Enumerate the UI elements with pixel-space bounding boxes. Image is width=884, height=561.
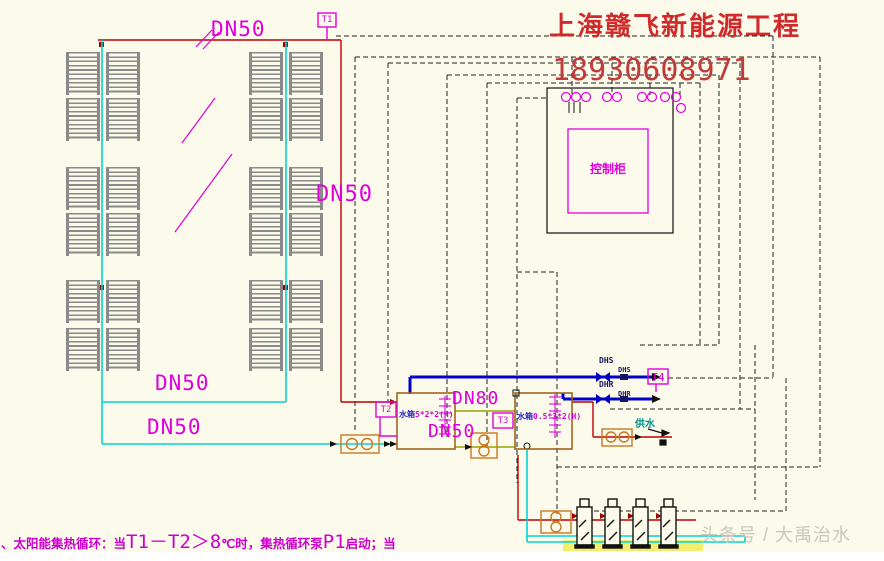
note-pre: 、太阳能集热循环：当 xyxy=(1,537,126,551)
pump-heater-loop xyxy=(541,511,571,533)
pipe-label-dn50-right: DN50 xyxy=(316,184,373,206)
solar-collector-panel xyxy=(289,52,323,95)
note-end: 启动；当 xyxy=(346,537,396,551)
terminal-stubs xyxy=(569,102,580,113)
sensor-t3: T3 xyxy=(493,417,513,426)
watermark: 头条号 / 大禹治水 xyxy=(700,526,851,544)
note-pump: P1 xyxy=(323,531,346,553)
pipe-label-dn50-top: DN50 xyxy=(211,19,266,40)
solar-collector-panel xyxy=(66,167,100,210)
solar-collector-panel xyxy=(66,328,100,371)
solar-collector-panel xyxy=(289,328,323,371)
dhw-supply-sublabel: DHS xyxy=(618,367,631,374)
solar-collector-panel xyxy=(249,280,283,323)
break-marks xyxy=(175,30,232,232)
tank1-name: 水箱 xyxy=(399,410,415,419)
water-heater-unit xyxy=(575,499,594,548)
company-phone: 18930608971 xyxy=(552,56,751,86)
solar-collector-panel xyxy=(66,98,100,141)
water-heater-unit xyxy=(631,499,650,548)
control-cabinet xyxy=(547,88,673,233)
solar-collector-panel xyxy=(66,280,100,323)
company-title: 上海赣飞新能源工程 xyxy=(549,13,801,39)
supply-outlet-label: 供水 xyxy=(635,420,655,430)
bottom-white-strip xyxy=(0,552,884,561)
solar-collector-panel xyxy=(106,98,140,141)
solar-collector-panel xyxy=(66,213,100,256)
tank2-name: 水箱 xyxy=(517,412,533,421)
note-mid: ℃时，集热循环泵 xyxy=(221,537,323,551)
solar-collector-panel xyxy=(249,98,283,141)
solar-collector-panel xyxy=(106,213,140,256)
pipe-red-arrow-marks xyxy=(99,42,662,519)
solar-collector-panel xyxy=(249,167,283,210)
pipe-label-dn80: DN80 xyxy=(452,390,499,408)
solar-collector-panel xyxy=(106,328,140,371)
solar-collector-panel xyxy=(106,52,140,95)
solar-collector-panel xyxy=(289,98,323,141)
water-heater-unit xyxy=(659,499,678,548)
sensor-t1: T1 xyxy=(318,16,336,25)
tank-drain-circle xyxy=(524,443,530,449)
dhw-supply-label: DHS xyxy=(599,357,613,365)
tank1-label: 水箱5*2*2(H) xyxy=(399,411,454,419)
operation-note: 、太阳能集热循环：当T1－T2＞8℃时，集热循环泵P1启动；当 xyxy=(1,533,396,552)
sensor-t2: T2 xyxy=(376,406,396,415)
sensor-t4: T4 xyxy=(648,372,668,383)
control-wiring-dashed xyxy=(336,36,820,514)
dhw-return-sublabel: DHR xyxy=(618,391,631,398)
control-cabinet-label: 控制柜 xyxy=(568,163,648,175)
note-formula: T1－T2＞8 xyxy=(126,531,221,553)
tank2-spec: 0.5*3*2(H) xyxy=(533,412,581,421)
tank2-label: 水箱0.5*3*2(H) xyxy=(517,413,581,421)
tank1-spec: 5*2*2(H) xyxy=(415,410,454,419)
solar-collector-panel xyxy=(289,213,323,256)
pipe-label-dn50-between: DN50 xyxy=(428,423,475,441)
solar-collector-panel xyxy=(249,328,283,371)
storage-tank-2 xyxy=(515,393,572,449)
solar-collector-panel xyxy=(249,213,283,256)
solar-collector-panel xyxy=(106,167,140,210)
solar-collector-panel xyxy=(249,52,283,95)
dhw-return-label: DHR xyxy=(599,381,613,389)
solar-collector-panel xyxy=(106,280,140,323)
pipe-blue-dhw xyxy=(410,377,652,399)
solar-collector-panel xyxy=(66,52,100,95)
pipe-label-dn50-low: DN50 xyxy=(147,417,202,438)
cad-solar-system-drawing: 上海赣飞新能源工程 18930608971 DN50 DN50 DN50 DN5… xyxy=(0,0,884,561)
water-heater-unit xyxy=(603,499,622,548)
solar-collector-panel xyxy=(289,280,323,323)
pipe-label-dn50-mid: DN50 xyxy=(155,373,210,394)
